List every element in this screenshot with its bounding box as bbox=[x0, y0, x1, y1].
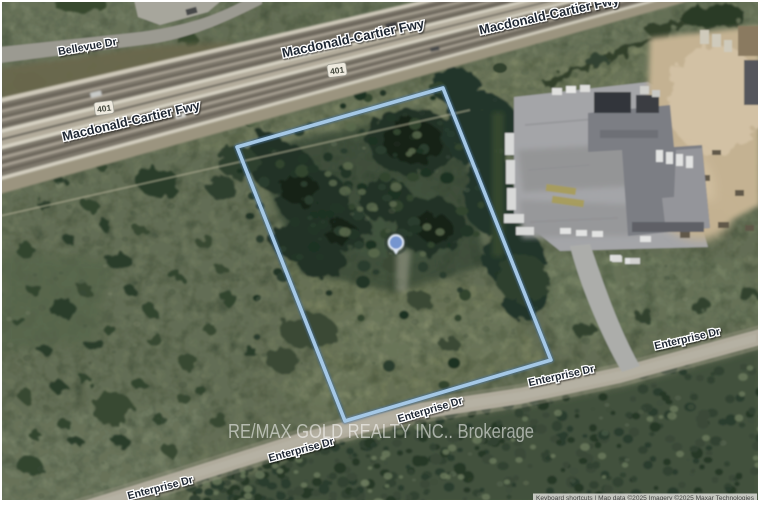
svg-text:401: 401 bbox=[96, 103, 112, 115]
svg-text:RE/MAX GOLD REALTY INC.. Broke: RE/MAX GOLD REALTY INC.. Brokerage bbox=[228, 420, 534, 443]
svg-text:401: 401 bbox=[329, 65, 345, 77]
